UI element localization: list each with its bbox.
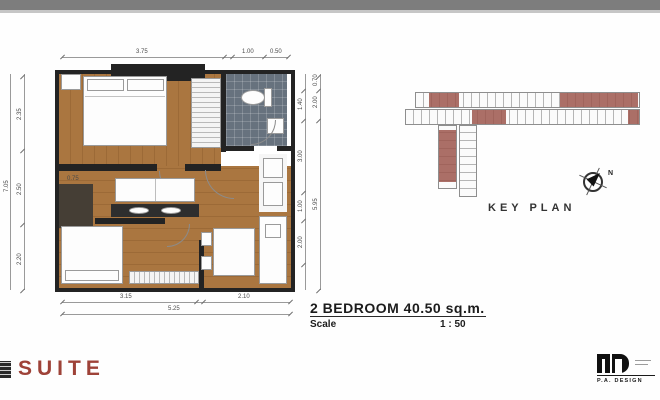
keyplan-stem-right [459,125,477,197]
pa-design-logo-d [612,354,629,373]
walk-in-closet [59,184,93,228]
toilet-tank [264,88,272,107]
scale-label: Scale [310,319,336,330]
dining-chair-1 [201,232,212,246]
dim-label: 2.20 [17,253,23,265]
dim-tick [288,312,293,317]
dim-label: 5.95 [313,198,319,210]
sofa-cushion-split [155,179,156,201]
wardrobe1 [191,78,221,148]
suite-logo-text: SUITE [18,357,105,381]
bedroom2-wall [95,218,165,224]
dim-label: 1.00 [298,200,304,212]
brochure-page: 0.75 3.75 1.00 0.50 3.15 2.10 5.25 2.35 … [0,0,660,400]
dim-line-right-inner [305,74,306,290]
dining-table [213,228,255,276]
dim-tick [288,300,293,305]
dim-label: 3.00 [298,150,304,162]
pa-design-rule [597,375,655,376]
bedroom1-wall [59,164,157,171]
dim-line-top [62,57,288,58]
dim-label: 1.00 [242,49,254,55]
dim-label: 1.40 [298,98,304,110]
keyplan-highlight-units [429,93,459,107]
dim-label: 0.50 [270,49,282,55]
dim-label: 2.00 [298,236,304,248]
title-rule [310,316,486,317]
keyplan-highlight-units [560,93,638,107]
dim-line-bottom [62,302,290,303]
toilet-icon [241,90,265,105]
bathroom-wall-left [221,74,226,152]
pa-design-logo-a [597,354,610,373]
dim-label: 2.50 [17,183,23,195]
dim-line-left [24,74,25,290]
nightstand [61,74,81,90]
bed1-pillow-left [87,79,124,91]
keyplan-highlight-units [439,130,456,182]
header-band-accent [0,10,660,13]
pa-design-logo: P.A. DESIGN [595,352,657,392]
dim-label: 5.25 [168,306,180,312]
fridge [263,158,283,178]
dim-tick [316,289,321,294]
dim-label: 3.15 [120,294,132,300]
dim-label: 0.70 [313,74,319,86]
keyplan-wing-bottom [405,109,640,125]
header-band [0,0,660,10]
dining-chair-2 [201,256,212,270]
scale-value: 1 : 50 [440,319,466,330]
key-plan: N KEY PLAN [400,80,652,220]
dim-tick [20,289,25,294]
console-dish-left [129,207,149,214]
dim-line-bottom-total [62,314,290,315]
dim-label: 3.75 [136,49,148,55]
kitchen-sink [265,224,281,238]
bathroom-wall-bottom-right [277,146,291,151]
keyplan-highlight-units [628,110,639,124]
dim-tick [286,55,291,60]
dim-label: 2.00 [313,96,319,108]
dim-label: 2.35 [17,108,23,120]
key-plan-label: KEY PLAN [488,202,575,214]
bed2-pillow [65,270,119,281]
north-label: N [608,170,613,177]
pa-design-text: P.A. DESIGN [597,378,643,384]
suite-logo-icon [0,361,11,378]
keyplan-highlight-units [472,110,506,124]
pa-design-logo-d-slot [615,359,622,373]
dim-label: 0.75 [67,176,79,182]
console-dish-right [161,207,181,214]
bathroom-wall-bottom [226,146,254,151]
dim-line-left-total [10,74,11,290]
credit-line [635,364,648,365]
shoe-cabinet [263,182,283,206]
unit-title: 2 BEDROOM 40.50 sq.m. [310,300,485,316]
bed1-blanket-line [85,96,165,97]
bed1-pillow-right [127,79,164,91]
wardrobe2 [129,271,199,284]
tv-console [111,204,199,217]
dim-line-right-outer [320,74,321,290]
credit-line [635,360,651,361]
dim-label: 7.05 [4,180,10,192]
floor-plan: 0.75 [55,70,295,292]
dim-label: 2.10 [238,294,250,300]
